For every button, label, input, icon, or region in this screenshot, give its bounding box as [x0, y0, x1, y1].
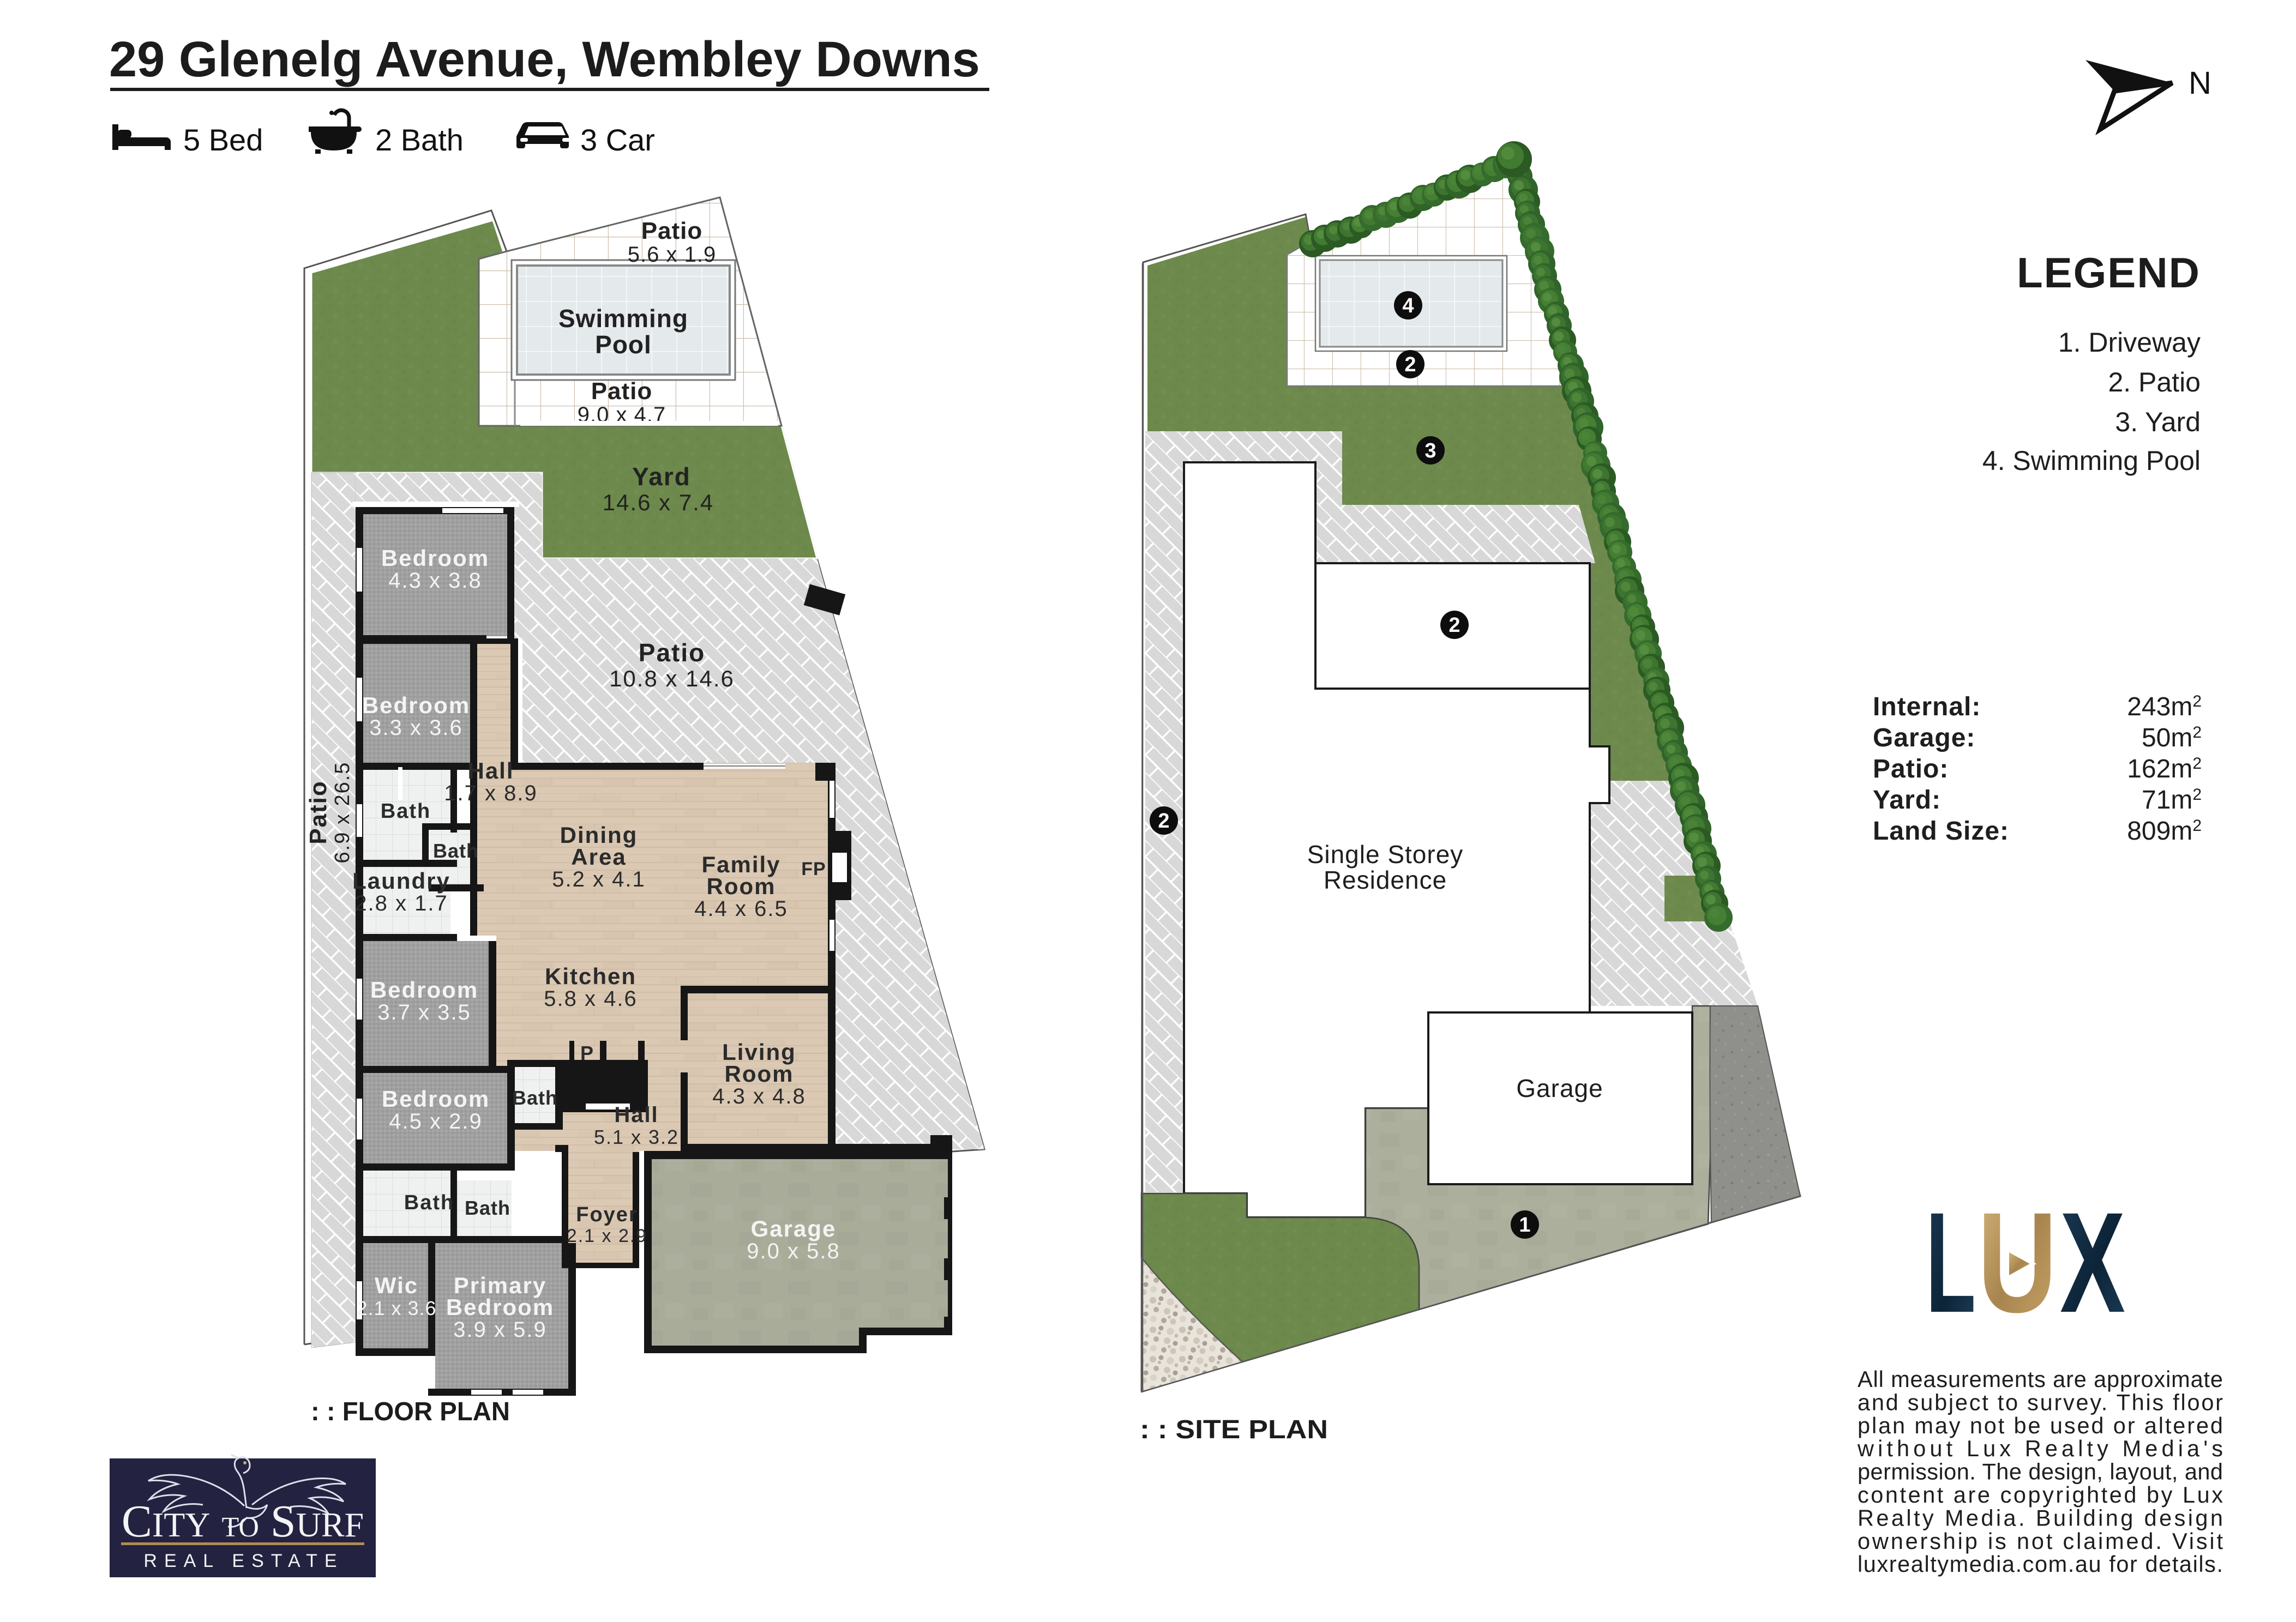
svg-text:: : FLOOR PLAN: : : FLOOR PLAN [311, 1397, 510, 1426]
svg-text:Patio: Patio [641, 218, 703, 244]
svg-text:Bath: Bath [465, 1197, 510, 1219]
svg-text:2 Bath: 2 Bath [375, 123, 464, 157]
svg-text:2.1 x 2.9: 2.1 x 2.9 [567, 1226, 647, 1246]
svg-text:5.2 x 4.1: 5.2 x 4.1 [552, 867, 645, 891]
svg-text:4: 4 [1402, 294, 1414, 317]
svg-text:2: 2 [1404, 353, 1416, 376]
svg-text:REAL ESTATE: REAL ESTATE [143, 1551, 344, 1571]
svg-text:Foyer: Foyer [576, 1203, 638, 1226]
svg-text:6.9 x 26.5: 6.9 x 26.5 [331, 762, 354, 864]
svg-text:3.3 x 3.6: 3.3 x 3.6 [369, 716, 462, 740]
svg-text:162m2: 162m2 [2127, 755, 2202, 783]
svg-text:4.3 x 4.8: 4.3 x 4.8 [712, 1084, 806, 1108]
svg-text:4.4 x 6.5: 4.4 x 6.5 [694, 897, 788, 921]
svg-text:Yard:: Yard: [1873, 786, 1941, 815]
svg-text:Internal:: Internal: [1873, 692, 1981, 721]
svg-text:4. Swimming Pool: 4. Swimming Pool [1982, 445, 2201, 476]
svg-text:1.7 x 8.9: 1.7 x 8.9 [444, 781, 537, 805]
svg-text:Kitchen: Kitchen [545, 963, 636, 989]
svg-text:Laundry: Laundry [352, 868, 450, 894]
svg-text:243m2: 243m2 [2127, 692, 2202, 721]
svg-text:Patio:: Patio: [1873, 755, 1949, 783]
svg-text:X: X [2060, 1183, 2126, 1342]
svg-text:Bedroom: Bedroom [362, 692, 470, 718]
svg-text:1: 1 [1519, 1214, 1530, 1237]
svg-text:1. Driveway: 1. Driveway [2058, 327, 2201, 358]
svg-text:Yard: Yard [632, 462, 691, 491]
svg-text:5.8 x 4.6: 5.8 x 4.6 [544, 987, 637, 1011]
svg-text:3.9 x 5.9: 3.9 x 5.9 [453, 1318, 546, 1342]
svg-text:2.1 x 3.6: 2.1 x 3.6 [356, 1297, 436, 1319]
svg-text:Room: Room [725, 1061, 794, 1087]
svg-text:Swimming: Swimming [558, 304, 688, 333]
svg-text:L: L [1926, 1183, 1976, 1342]
svg-text:Patio: Patio [591, 378, 653, 405]
svg-text:and subject to survey. This fl: and subject to survey. This floor [1858, 1389, 2223, 1415]
svg-text:Bath: Bath [404, 1191, 454, 1214]
svg-text:plan may not be used or altere: plan may not be used or altered [1858, 1413, 2223, 1438]
svg-text:luxrealtymedia.com.au for deta: luxrealtymedia.com.au for details. [1858, 1551, 2223, 1577]
svg-text:Bedroom: Bedroom [381, 545, 489, 571]
svg-text:3. Yard: 3. Yard [2115, 407, 2201, 437]
svg-text:Bedroom: Bedroom [446, 1294, 554, 1320]
svg-text:Bath: Bath [381, 800, 431, 823]
svg-text:Hall: Hall [467, 758, 514, 783]
svg-text:9.0 x 5.8: 9.0 x 5.8 [747, 1239, 840, 1263]
svg-text:Single Storey: Single Storey [1307, 840, 1464, 869]
svg-text:permission. The design, layout: permission. The design, layout, and [1858, 1459, 2223, 1485]
svg-text:Bath: Bath [512, 1087, 558, 1109]
svg-text:5 Bed: 5 Bed [183, 123, 263, 157]
svg-text:LEGEND: LEGEND [2017, 249, 2201, 297]
svg-text:FP: FP [801, 859, 826, 879]
svg-text:Pool: Pool [595, 330, 652, 359]
svg-text:4.3 x 3.8: 4.3 x 3.8 [388, 569, 482, 593]
svg-text:All measurements are approxima: All measurements are approximate [1858, 1366, 2223, 1392]
svg-text:3: 3 [1425, 439, 1436, 462]
svg-text:5.6 x 1.9: 5.6 x 1.9 [628, 243, 716, 267]
svg-text:29 Glenelg Avenue, Wembley Dow: 29 Glenelg Avenue, Wembley Downs [109, 32, 980, 87]
svg-text:2: 2 [1158, 810, 1169, 833]
svg-text:10.8 x 14.6: 10.8 x 14.6 [609, 666, 735, 691]
svg-text:Bedroom: Bedroom [370, 977, 478, 1003]
svg-text:2: 2 [1448, 614, 1460, 637]
svg-text:Residence: Residence [1324, 866, 1447, 894]
svg-text:ownership is not claimed. Visi: ownership is not claimed. Visit [1858, 1528, 2223, 1554]
svg-text:Garage: Garage [751, 1216, 837, 1241]
svg-text:Area: Area [571, 844, 626, 870]
svg-text:3 Car: 3 Car [580, 123, 655, 157]
svg-text:: : SITE PLAN: : : SITE PLAN [1140, 1415, 1328, 1444]
svg-text:Wic: Wic [375, 1273, 418, 1298]
svg-text:809m2: 809m2 [2127, 817, 2202, 846]
svg-text:Bedroom: Bedroom [382, 1086, 490, 1112]
svg-text:Land Size:: Land Size: [1873, 817, 2009, 846]
svg-text:2. Patio: 2. Patio [2108, 367, 2201, 397]
svg-text:P: P [580, 1042, 593, 1064]
svg-text:N: N [2189, 65, 2211, 101]
svg-text:Garage:: Garage: [1873, 723, 1975, 752]
svg-text:2.8 x 1.7: 2.8 x 1.7 [354, 891, 448, 915]
svg-text:5.1 x 3.2: 5.1 x 3.2 [594, 1126, 679, 1148]
svg-text:Garage: Garage [1516, 1074, 1603, 1102]
svg-text:14.6 x 7.4: 14.6 x 7.4 [603, 490, 714, 515]
svg-text:4.5 x 2.9: 4.5 x 2.9 [389, 1110, 482, 1133]
svg-text:content are copyrighted by Lux: content are copyrighted by Lux [1858, 1482, 2223, 1508]
svg-text:Bath: Bath [433, 840, 479, 862]
svg-text:Hall: Hall [614, 1103, 658, 1127]
svg-text:Patio: Patio [639, 638, 705, 667]
svg-text:3.7 x 3.5: 3.7 x 3.5 [377, 1000, 471, 1024]
svg-text:Room: Room [707, 873, 776, 899]
svg-text:Patio: Patio [305, 780, 332, 845]
